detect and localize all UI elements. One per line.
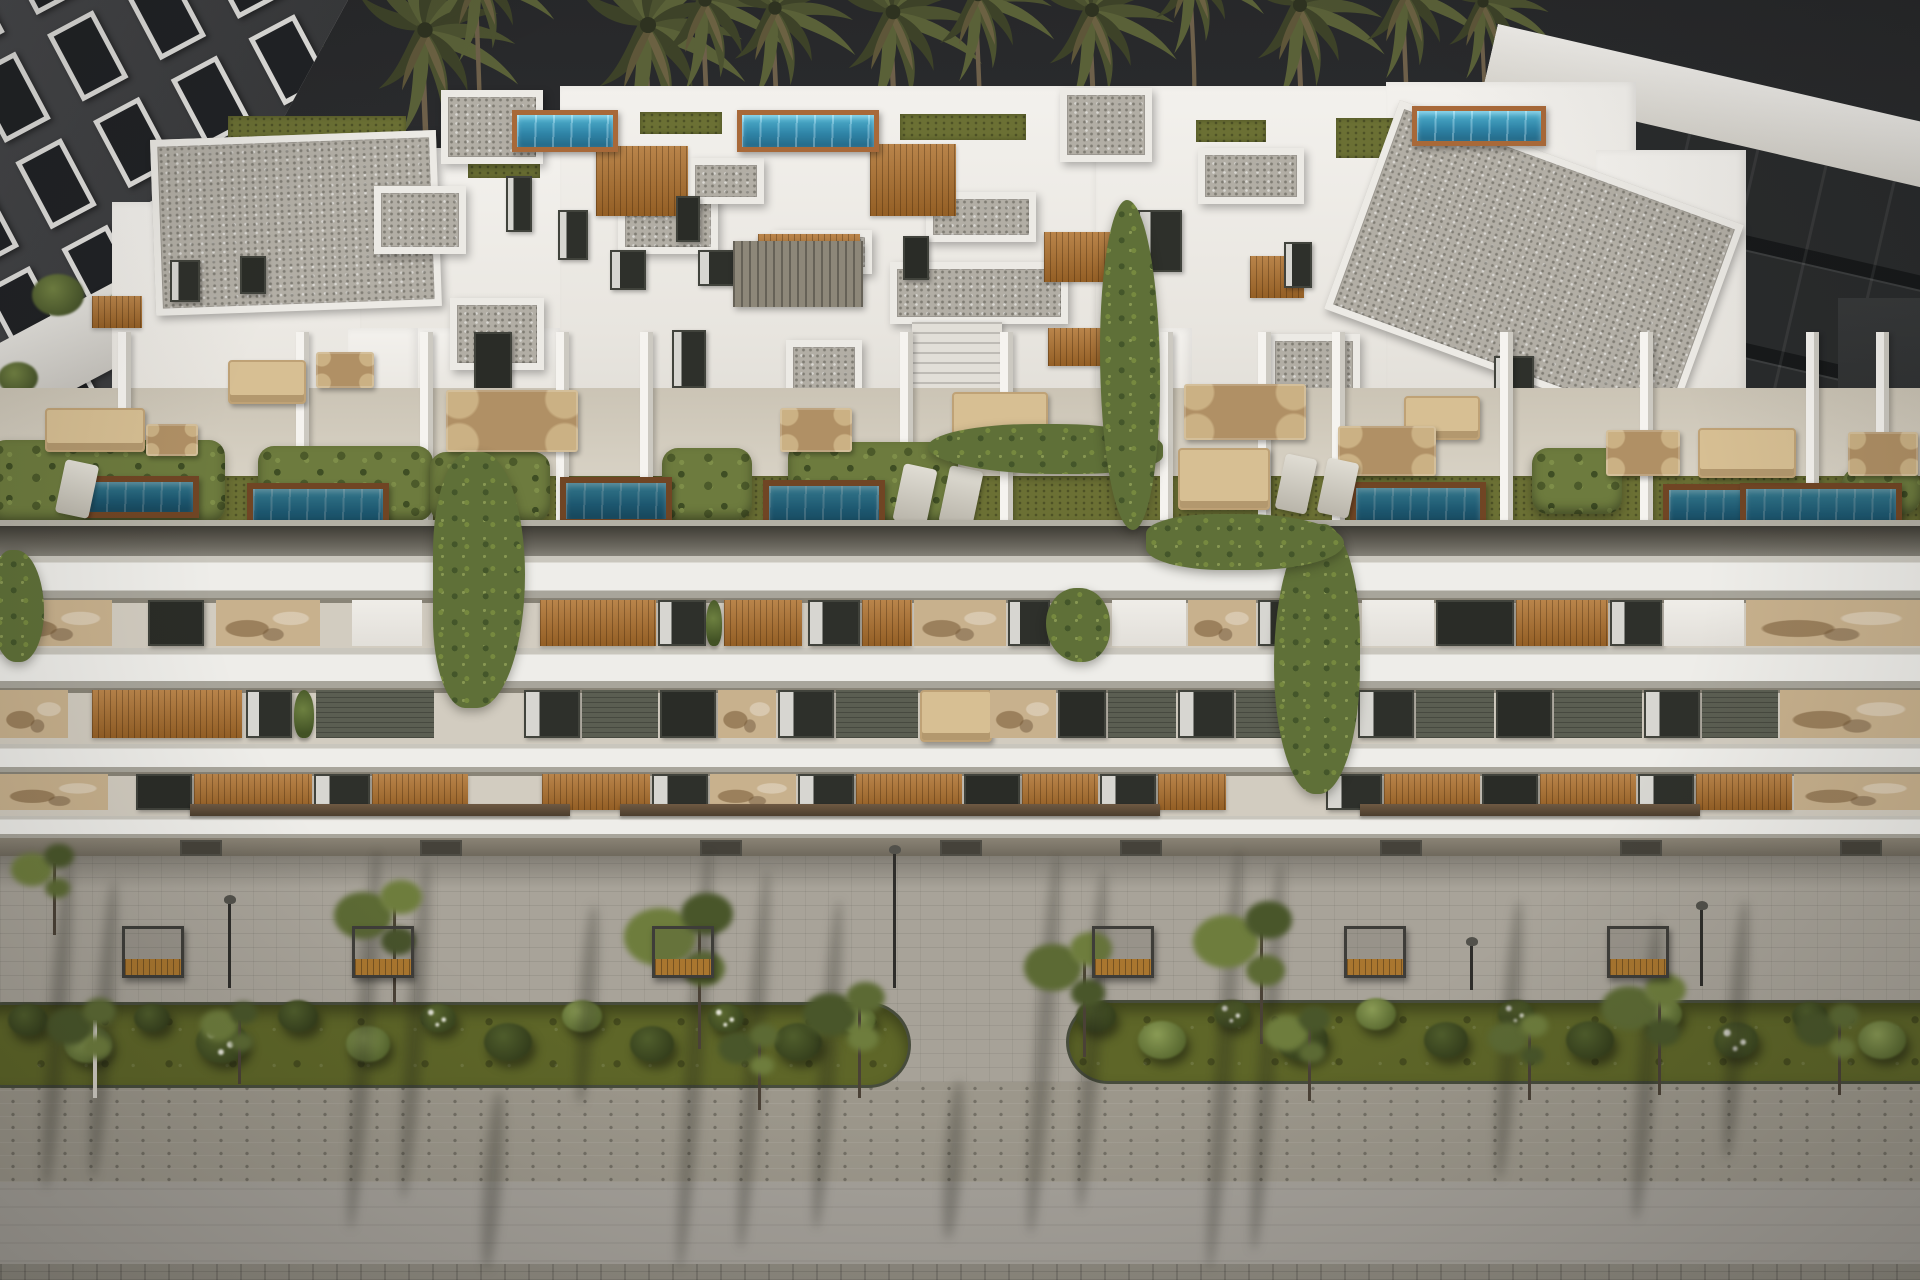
- bench-wood-slats: [125, 959, 181, 975]
- street-tree: [13, 838, 97, 939]
- tree-foliage: [1245, 901, 1293, 939]
- street-tree: [1798, 998, 1882, 1099]
- street-bench: [1344, 926, 1406, 978]
- tree-trunk: [1308, 1026, 1311, 1101]
- tree-trunk: [238, 1020, 241, 1085]
- tree-foliage: [1829, 1004, 1859, 1028]
- architectural-render-scene: [0, 0, 1920, 1280]
- tree-foliage: [83, 998, 116, 1024]
- bench-wood-slats: [1610, 959, 1666, 975]
- street-tree: [49, 992, 141, 1102]
- street-bench: [1092, 926, 1154, 978]
- tree-trunk: [1528, 1032, 1531, 1100]
- tree-foliage: [846, 982, 885, 1013]
- bench-wood-slats: [1347, 959, 1403, 975]
- tree-trunk: [858, 1006, 861, 1098]
- tree-foliage: [231, 1033, 254, 1051]
- tree-foliage: [45, 878, 70, 898]
- tree-foliage: [44, 844, 74, 868]
- tree-foliage: [1299, 1006, 1331, 1031]
- street-tree: [1490, 1008, 1570, 1104]
- street-lamp: [893, 854, 896, 988]
- tree-trunk: [1260, 932, 1263, 1044]
- street-tree: [720, 1018, 800, 1114]
- street-bench: [352, 926, 414, 978]
- tree-trunk: [1838, 1023, 1841, 1094]
- street-bench: [652, 926, 714, 978]
- tree-foliage: [1520, 1014, 1549, 1037]
- tree-foliage: [230, 1002, 257, 1024]
- tree-trunk: [758, 1042, 761, 1110]
- tree-foliage: [1645, 974, 1685, 1006]
- tree-foliage: [1299, 1042, 1325, 1063]
- tree-trunk: [1658, 1000, 1661, 1095]
- tree-foliage: [1520, 1046, 1544, 1065]
- tree-foliage: [1830, 1038, 1855, 1058]
- tree-trunk: [1083, 959, 1086, 1058]
- street-bench: [122, 926, 184, 978]
- tree-foliage: [750, 1056, 774, 1075]
- tree-foliage: [847, 1025, 879, 1051]
- tree-foliage: [84, 1036, 112, 1058]
- tree-foliage: [1071, 979, 1106, 1007]
- birch-trunk: [93, 1020, 97, 1098]
- street-lamp: [1470, 946, 1473, 990]
- bench-wood-slats: [655, 959, 711, 975]
- street-tree: [1604, 966, 1716, 1100]
- street-lamp: [228, 904, 231, 988]
- tree-foliage: [1246, 955, 1286, 987]
- street-tree: [202, 997, 278, 1088]
- street-bench: [1607, 926, 1669, 978]
- street-lamp: [1700, 910, 1703, 986]
- tree-foliage: [1646, 1019, 1680, 1046]
- street-tree: [1266, 1000, 1354, 1106]
- bench-wood-slats: [355, 959, 411, 975]
- street-furniture-layer: [0, 0, 1920, 1280]
- bench-wood-slats: [1095, 959, 1151, 975]
- tree-foliage: [380, 880, 422, 913]
- street-tree: [806, 974, 914, 1104]
- tree-trunk: [53, 863, 56, 934]
- tree-foliage: [750, 1024, 779, 1047]
